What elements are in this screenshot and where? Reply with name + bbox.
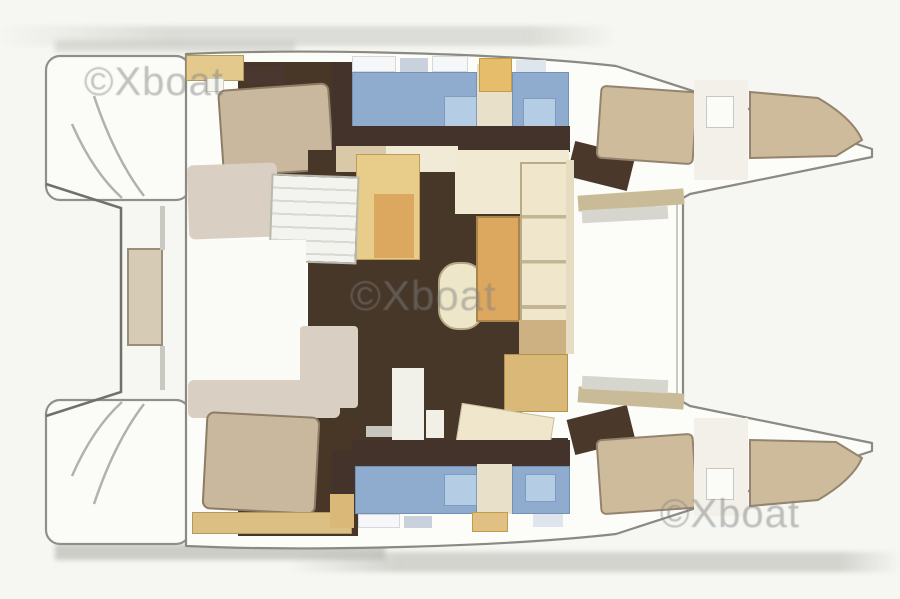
bow-hatch-top <box>706 96 734 128</box>
shower-tray-bottom-aft <box>444 474 477 506</box>
cockpit-bench <box>127 248 163 346</box>
nav-seat-orange <box>374 194 414 258</box>
shower-tray-top-fwd <box>523 98 556 129</box>
double-bed-top-fwd <box>596 85 699 166</box>
hull-bottom-corridor-mid <box>352 440 570 466</box>
saloon-panel-bottom <box>426 410 444 438</box>
locker-top-aft <box>244 66 284 84</box>
floor-plan-canvas: ©Xboat ©Xboat ©Xboat <box>0 0 900 599</box>
vanity-top <box>479 58 512 92</box>
watermark-center: ©Xboat <box>350 272 497 320</box>
forepeak-berth-top <box>750 92 862 158</box>
deck-hatch-top <box>352 56 396 72</box>
deck-hatch-bottom <box>404 516 432 528</box>
shower-tray-top-aft <box>444 96 477 130</box>
saloon-step <box>366 426 392 437</box>
bathroom-divider-bottom <box>477 464 512 514</box>
deck-hatch-top <box>400 58 428 73</box>
dinette-seat-top <box>187 162 280 239</box>
saloon-floor-light <box>188 240 306 386</box>
deck-hatch-top <box>432 56 468 72</box>
galley-tan-low <box>504 354 568 412</box>
cockpit-wall-top <box>160 206 165 250</box>
vanity-bottom <box>472 512 508 532</box>
deck-hatch-bottom <box>358 514 400 528</box>
chaise-seat <box>300 326 358 408</box>
hull-top-floor-mid <box>332 62 354 150</box>
stern-notch-line <box>46 184 121 416</box>
cabinet-bottom-aft <box>192 512 352 534</box>
double-bed-bottom-aft <box>202 411 321 515</box>
swim-platform-bottom <box>46 400 190 544</box>
cabinet-bottom-mid <box>330 494 354 528</box>
bulkhead-top-fwd <box>694 80 748 180</box>
shower-tray-bottom-fwd <box>525 474 556 502</box>
cockpit-wall-bottom <box>160 346 165 390</box>
saloon-front-wall <box>566 160 574 354</box>
deck-hatch-bottom <box>533 514 563 527</box>
watermark-top-left: ©Xboat <box>84 60 224 105</box>
galley-tan-mid <box>519 320 568 354</box>
watermark-bottom-right: ©Xboat <box>660 492 800 537</box>
